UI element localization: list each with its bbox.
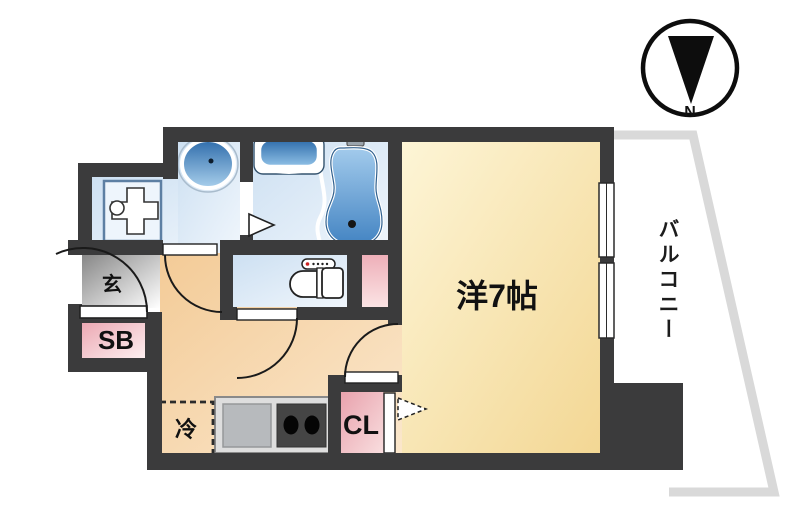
pipe-space — [362, 255, 388, 307]
main-room-label: 洋7帖 — [456, 278, 538, 314]
shoe-box-label: SB — [98, 325, 134, 355]
tub-drain-icon — [348, 220, 356, 228]
entrance-door-leaf — [80, 306, 147, 318]
closet-label: CL — [343, 410, 379, 440]
burner-icon — [284, 416, 299, 435]
pan-drain-icon — [110, 201, 124, 215]
main-room-door-leaf — [345, 372, 398, 383]
entrance-label: 玄 — [102, 272, 122, 296]
basin-drain-icon — [209, 159, 214, 164]
compass-north-label: N — [684, 104, 696, 121]
toilet-door-leaf — [237, 309, 297, 320]
floor-plan: N 玄 SB 冷 CL 洋7帖 バルコニー — [0, 0, 800, 512]
kitchen-counter — [215, 397, 329, 453]
wash-basin — [178, 136, 238, 192]
closet-door — [384, 393, 395, 453]
refrigerator-label: 冷 — [175, 417, 197, 442]
toilet-tank — [322, 268, 343, 298]
washing-machine-pan — [104, 181, 161, 241]
burner-icon — [305, 416, 320, 435]
kitchen-sink — [223, 404, 271, 447]
toilet-bowl — [290, 271, 317, 297]
balcony-label: バルコニー — [652, 218, 682, 368]
washroom-door-leaf — [163, 244, 217, 255]
compass: N — [643, 21, 737, 121]
